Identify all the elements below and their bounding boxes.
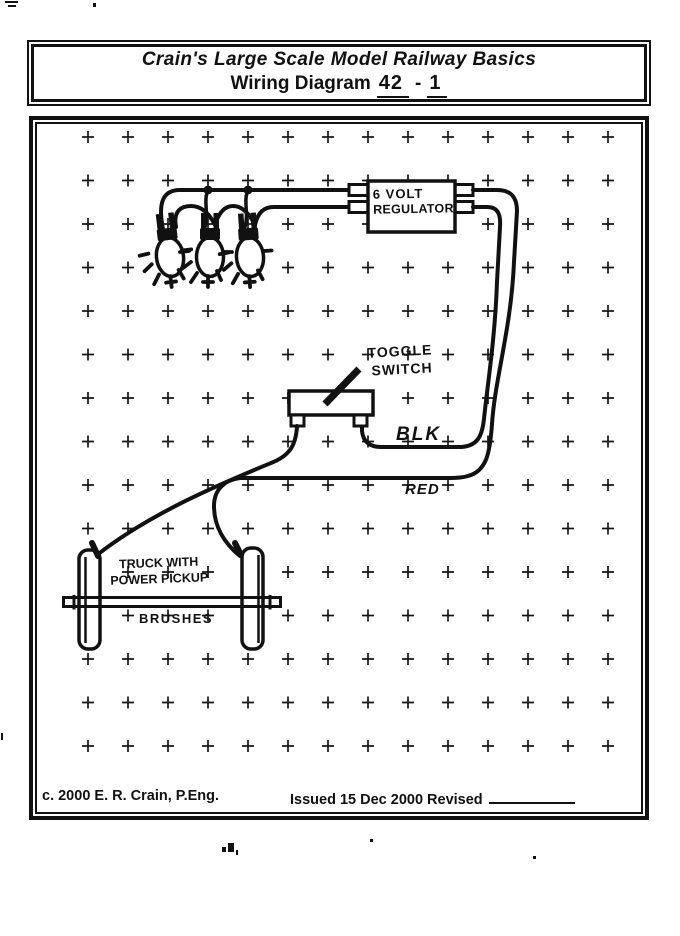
truck-label: TRUCK WITH POWER PICKUP <box>93 554 224 590</box>
revised-blank-line <box>489 788 575 804</box>
lamp-bus-wires <box>161 186 353 230</box>
bulb-pin <box>238 213 245 230</box>
regulator-terminal <box>349 185 368 196</box>
toggle-switch-label: TOGGLE SWITCH <box>367 341 434 379</box>
regulator-label: 6 VOLT REGULATOR <box>373 185 454 218</box>
light-bulb-2 <box>180 213 232 287</box>
scan-artifact <box>8 5 16 7</box>
bulb-pin <box>214 213 220 230</box>
copyright-text: c. 2000 E. R. Crain, P.Eng. <box>42 788 219 804</box>
scan-artifact <box>228 843 234 852</box>
wire-black <box>362 207 500 447</box>
junction-dot <box>204 186 213 195</box>
toggle-switch <box>289 369 373 426</box>
scan-artifact <box>5 1 18 3</box>
scan-artifact <box>236 850 238 855</box>
red-wire-label: RED <box>405 481 440 500</box>
wire-switch-to-truck <box>97 426 297 555</box>
regulator-terminal <box>349 202 368 213</box>
scan-artifact <box>370 839 373 842</box>
issued-text: Issued 15 Dec 2000 Revised <box>290 788 575 808</box>
bulb-glass <box>197 238 224 277</box>
bulb-base <box>238 227 259 240</box>
scanned-page: Crain's Large Scale Model Railway Basics… <box>0 0 680 936</box>
scan-artifact <box>1 733 3 740</box>
scan-artifact <box>93 3 96 7</box>
bulb-base <box>200 228 220 240</box>
regulator-terminal <box>454 202 473 213</box>
scan-artifact <box>533 856 536 859</box>
brushes-label: BRUSHES <box>139 611 213 627</box>
switch-terminal <box>354 415 367 426</box>
bulb-pin <box>201 213 207 230</box>
regulator-terminal <box>454 185 473 196</box>
black-wire-label: BLK <box>396 423 441 447</box>
bulb-pin <box>250 212 257 229</box>
bulb-base <box>157 227 178 241</box>
wire-lamp3-drop <box>245 190 248 227</box>
scan-artifact <box>222 847 226 852</box>
junction-dot <box>244 186 253 195</box>
